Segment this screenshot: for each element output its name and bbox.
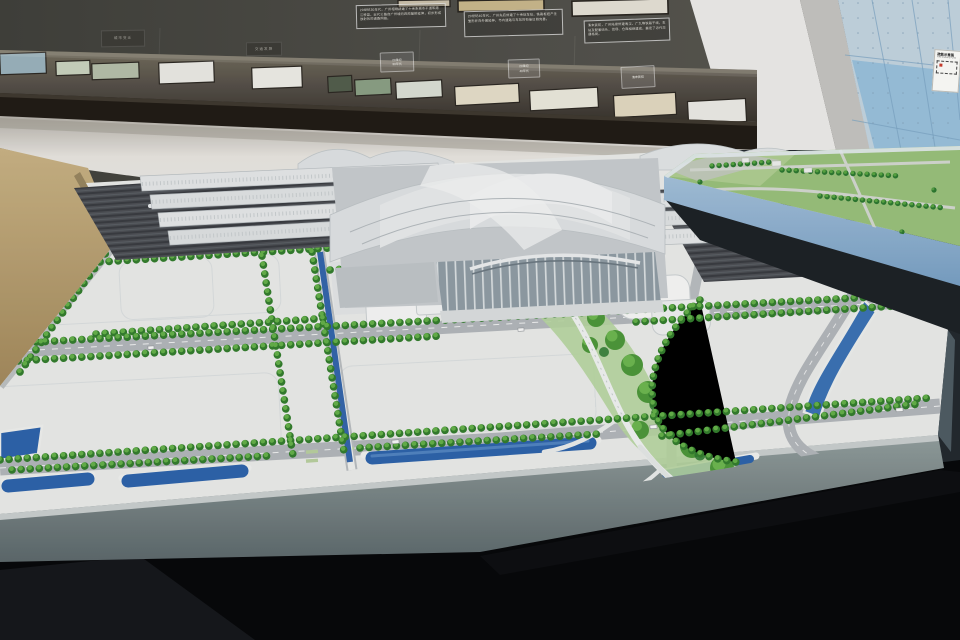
period-label: 清末民初	[620, 65, 655, 89]
fire-plan-diagram	[936, 60, 958, 74]
vignette	[0, 0, 960, 640]
period-label: 20世纪 40年代	[508, 58, 541, 78]
scene	[0, 0, 960, 640]
period-label: 20世纪 30年代	[380, 51, 415, 72]
caption-panel: 20世纪30年代，广州相继辟建了十余条城市干道和跨江桥梁，近代公路自广州城向四周…	[356, 3, 447, 29]
caption-panel: 20世纪40年代，广州先后修建了十余处车站，铁路枢纽产生雏形并向外围延伸，市内道…	[464, 9, 564, 38]
exhibit-photo: 20世纪30年代，广州相继辟建了十余条城市干道和跨江桥梁，近代公路自广州城向四周…	[0, 0, 960, 640]
caption-panel: 清末民初，广州陆续修建粤汉、广九等铁路干线，车站及配套码头、货场、仓库相继建成，…	[584, 18, 671, 44]
fire-evacuation-sign: 疏散示意图 FIRE ESCAPE PLAN	[932, 49, 960, 93]
section-plaque: 城市变迁	[101, 30, 145, 48]
section-plaque: 交通发展	[246, 42, 282, 57]
